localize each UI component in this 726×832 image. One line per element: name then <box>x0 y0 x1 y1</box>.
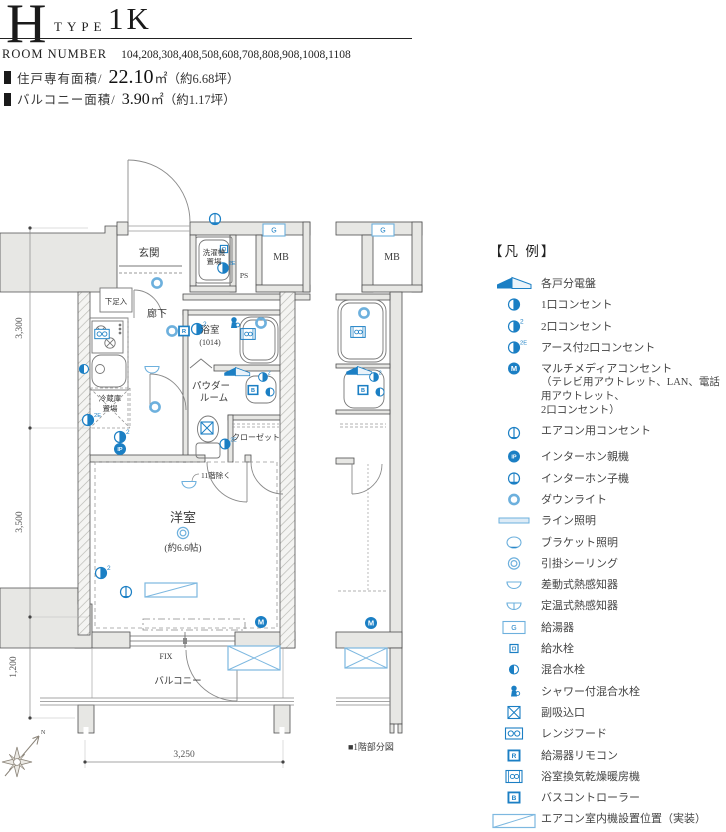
bath-dryer-icon <box>351 327 365 338</box>
mixing-tap-icon <box>266 388 274 396</box>
legend-item: ブラケット照明 <box>487 535 725 550</box>
legend-label: ブラケット照明 <box>541 535 618 550</box>
outlet1-icon <box>487 297 541 312</box>
door-swings <box>128 160 382 701</box>
linelight-icon <box>487 513 541 528</box>
downlight-icon <box>167 326 176 335</box>
label-bath-size: (1014) <box>199 338 221 347</box>
room-numbers: 104,208,308,408,508,608,708,808,908,1008… <box>121 49 351 61</box>
legend-item: インターホン子機 <box>487 471 725 486</box>
bcontroller-icon <box>487 790 541 805</box>
balcony-area-label: バルコニー面積/ <box>17 89 116 108</box>
unit-area-tsubo: （約6.68坪） <box>168 68 240 87</box>
dim-left-2: 3,500 <box>15 511 25 533</box>
heat-detector-icon <box>145 367 159 374</box>
unit-area-label: 住戸専有面積/ <box>17 68 102 87</box>
heater-remote-icon <box>178 326 190 337</box>
legend-item: 混合水栓 <box>487 662 725 677</box>
label-note-11f: 11階除く <box>201 470 231 480</box>
header: H TYPE 1K ROOM NUMBER104,208,308,408,508… <box>6 0 466 120</box>
bath-folding-door <box>190 359 212 368</box>
legend-label: 引掛シーリング <box>541 556 618 571</box>
outlet2-icon <box>487 319 541 334</box>
plan-type-word: TYPE <box>54 19 107 35</box>
legend-item: ダウンライト <box>487 492 725 507</box>
legend-title: 【凡 例】 <box>489 240 725 260</box>
legend-item: 2口コンセント <box>487 319 725 334</box>
unit-area-row: 住戸専有面積/ 22.10 ㎡ （約6.68坪） <box>4 66 239 89</box>
legend-label: エアコン室内機設置位置（実装） <box>541 811 706 826</box>
compass-icon: N <box>2 730 46 777</box>
intercom-sub-icon <box>210 214 221 225</box>
balcony-area-value: 3.90 <box>122 91 150 109</box>
legend-item: 差動式熱感知器 <box>487 577 725 592</box>
partial-plan-caption: ■1階部分図 <box>348 741 394 752</box>
downlight-icon <box>359 308 368 317</box>
downlight-icon <box>152 278 161 287</box>
legend-item: バスコントローラー <box>487 790 725 805</box>
outlet-2-icon <box>259 371 271 382</box>
legend-label: マルチメディアコンセント（テレビ用アウトレット、LAN、電話用アウトレット、2口… <box>541 361 725 417</box>
water-heater-icon <box>372 224 394 236</box>
room-number-label: ROOM NUMBER <box>2 47 107 61</box>
intercom-main-icon <box>114 443 126 455</box>
range-hood-icon <box>95 329 109 338</box>
legend-label: 定温式熱感知器 <box>541 598 618 613</box>
label-corridor: 廊下 <box>147 307 167 320</box>
ac-outdoor-unit-icon <box>345 648 387 668</box>
legend-items: 各戸分電盤1口コンセント2口コンセントアース付2口コンセントマルチメディアコンセ… <box>487 276 725 832</box>
bullet-icon <box>4 71 11 84</box>
acindoor-solid-icon <box>487 811 541 831</box>
label-fix: FIX <box>160 652 173 661</box>
bathdryer-icon <box>487 769 541 784</box>
room-labels: 玄関 洗濯機 置場 PS MB 下足入 廊下 浴室 (1014) パウダー ルー… <box>99 246 400 752</box>
mixing-tap-icon <box>80 365 89 374</box>
label-washer: 洗濯機 <box>203 247 226 257</box>
unit-area-value: 22.10 <box>108 66 153 89</box>
outlet-2-icon <box>96 565 112 579</box>
ac-outlet-icon <box>121 587 132 598</box>
room-number-row: ROOM NUMBER104,208,308,408,508,608,708,8… <box>2 45 351 63</box>
legend-panel: 【凡 例】 各戸分電盤1口コンセント2口コンセントアース付2口コンセントマルチメ… <box>487 240 725 832</box>
watertap-icon <box>487 641 541 656</box>
ac-indoor-unit-icon <box>145 583 197 597</box>
legend-item: 引掛シーリング <box>487 556 725 571</box>
legend-label: 副吸込口 <box>541 705 585 720</box>
post-notch <box>84 727 89 734</box>
legend-label: インターホン親機 <box>541 449 629 464</box>
water-heater-icon <box>263 224 285 236</box>
downlight-icon <box>150 402 159 411</box>
gbox-icon <box>487 620 541 635</box>
legend-label: アース付2口コンセント <box>541 340 655 355</box>
heatdiff-icon <box>487 577 541 592</box>
legend-item: シャワー付混合水栓 <box>487 684 725 699</box>
label-powder: パウダー <box>192 380 230 392</box>
balcony-railing-partial <box>336 698 390 705</box>
mixtap-icon <box>487 662 541 677</box>
dashed-lines-partial <box>338 424 388 591</box>
outlet2e-icon <box>487 340 541 355</box>
bracketlight-icon <box>487 535 541 550</box>
heat-detector-icon <box>182 482 196 489</box>
ceiling-hook-icon <box>177 527 188 538</box>
intercom-sub-icon <box>487 471 541 486</box>
legend-label: シャワー付混合水栓 <box>541 684 640 699</box>
heatfixed-icon <box>487 598 541 613</box>
legend-label: インターホン子機 <box>541 471 629 486</box>
dim-bottom: 3,250 <box>173 750 195 760</box>
bath-controller-icon <box>357 385 368 395</box>
legend-label: 給湯器 <box>541 620 574 635</box>
plan-type-value: 1K <box>108 1 152 37</box>
sub-suction-icon <box>201 422 213 434</box>
window-fix <box>130 632 235 648</box>
multimedia-outlet-icon <box>255 616 267 628</box>
legend-item: ライン照明 <box>487 513 725 528</box>
distboard-icon <box>487 276 541 291</box>
balcony-area-row: バルコニー面積/ 3.90 ㎡ （約1.17坪） <box>4 89 236 109</box>
legend-item: 各戸分電盤 <box>487 276 725 291</box>
compass-north: N <box>41 730 46 736</box>
label-room: 洋室 <box>170 510 196 525</box>
label-room-size: (約6.6帖) <box>164 542 201 554</box>
label-mb-partial: MB <box>384 252 400 263</box>
floorplan-page: 2 2E M IP G <box>0 0 726 832</box>
legend-label: ライン照明 <box>541 513 596 528</box>
label-bath: 浴室 <box>200 324 219 336</box>
legend-label: 給水栓 <box>541 641 574 656</box>
label-ps: PS <box>240 271 248 280</box>
rangehood-icon <box>487 726 541 741</box>
kitchen-counter <box>90 318 128 390</box>
legend-item: 副吸込口 <box>487 705 725 720</box>
outlet-2-icon <box>115 429 131 443</box>
rremote-icon <box>487 748 541 763</box>
label-closet: クローゼット <box>232 432 280 442</box>
floor-plan: 玄関 洗濯機 置場 PS MB 下足入 廊下 浴室 (1014) パウダー ルー… <box>0 148 470 832</box>
legend-label: 給湯器リモコン <box>541 748 618 763</box>
svg-text:置場: 置場 <box>207 256 222 266</box>
dim-left-3: 1,200 <box>9 656 19 678</box>
legend-label: 混合水栓 <box>541 662 585 677</box>
bathtub <box>240 317 278 363</box>
acoutlet-icon <box>487 423 541 443</box>
mixing-tap-icon <box>376 388 384 396</box>
header-rule <box>0 38 412 39</box>
bath-controller-icon <box>247 385 258 395</box>
intercom-main-icon <box>487 449 541 464</box>
legend-item: 定温式熱感知器 <box>487 598 725 613</box>
legend-label: ダウンライト <box>541 492 607 507</box>
showertap-icon <box>487 684 541 699</box>
legend-item: 1口コンセント <box>487 297 725 312</box>
svg-text:置場: 置場 <box>103 403 118 413</box>
legend-label: 1口コンセント <box>541 297 613 312</box>
legend-label: バスコントローラー <box>541 790 640 805</box>
bullet-icon <box>4 93 11 106</box>
multimedia-icon <box>487 361 541 376</box>
balcony-area-tsubo: （約1.17坪） <box>164 89 236 108</box>
legend-item: 給湯器 <box>487 620 725 635</box>
post-notch <box>280 727 285 734</box>
label-fridge: 冷蔵庫 <box>99 393 122 403</box>
legend-label: 2口コンセント <box>541 319 613 334</box>
legend-label: 浴室換気乾燥暖房機 <box>541 769 640 784</box>
legend-item: エアコン室内機設置位置（実装） <box>487 811 725 831</box>
subsuction-icon <box>487 705 541 720</box>
legend-label: 差動式熱感知器 <box>541 577 618 592</box>
legend-item: 給水栓 <box>487 641 725 656</box>
legend-item: 浴室換気乾燥暖房機 <box>487 769 725 784</box>
legend-label: 各戸分電盤 <box>541 276 596 291</box>
legend-item: インターホン親機 <box>487 449 725 464</box>
svg-text:ルーム: ルーム <box>200 393 228 404</box>
dim-left-1: 3,300 <box>15 317 25 339</box>
label-balcony: バルコニー <box>154 676 201 687</box>
legend-label: エアコン用コンセント <box>541 423 651 438</box>
label-mb: MB <box>273 252 289 263</box>
downlight-icon <box>487 492 541 507</box>
closet-door <box>251 462 283 494</box>
legend-item: エアコン用コンセント <box>487 423 725 443</box>
legend-item: レンジフード <box>487 726 725 741</box>
ceilinghook-icon <box>487 556 541 571</box>
shower-tap-icon <box>231 317 240 328</box>
label-genkan: 玄関 <box>139 246 160 259</box>
legend-item: 給湯器リモコン <box>487 748 725 763</box>
bath-dryer-icon <box>241 329 255 340</box>
legend-item: アース付2口コンセント <box>487 340 725 355</box>
ac-outdoor-unit-icon <box>228 646 280 670</box>
multimedia-outlet-icon <box>365 617 377 629</box>
label-shoe-box: 下足入 <box>105 297 128 306</box>
legend-item: マルチメディアコンセント（テレビ用アウトレット、LAN、電話用アウトレット、2口… <box>487 361 725 417</box>
outlet-2e-icon <box>83 413 102 426</box>
legend-label: レンジフード <box>541 726 607 741</box>
